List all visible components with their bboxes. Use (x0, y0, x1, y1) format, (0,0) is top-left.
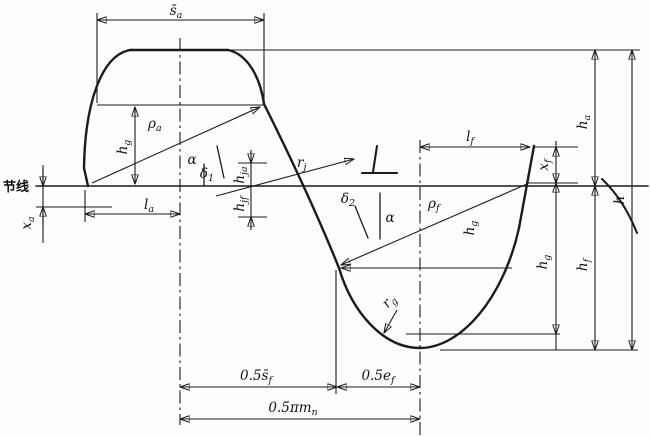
lower-tooth-root-fillet-curve (339, 228, 519, 348)
label-alpha-top: α (187, 152, 196, 168)
label-sa: s̄a (170, 3, 183, 21)
label-rg: rg (379, 291, 401, 312)
label-xa: xa (19, 216, 37, 230)
label-ha: ha (575, 114, 593, 129)
perpendicular-mark-stem (373, 146, 377, 172)
label-hf: hf (575, 257, 593, 271)
label-xf: xf (536, 158, 554, 171)
delta1-angle-tick (217, 146, 224, 178)
perpendicular-mark (362, 146, 397, 173)
label-hg-right: hg (535, 255, 553, 270)
label-delta1: δ1 (200, 166, 214, 184)
rho-a-leader-line (92, 107, 260, 183)
rg-leader-line (384, 310, 397, 333)
label-hg-bottom: hg (462, 221, 480, 236)
label-lf: lf (466, 129, 475, 147)
label-rho-f: ρf (427, 196, 441, 214)
delta2-angle-tick (355, 206, 368, 238)
label-hja: hja (232, 166, 250, 184)
label-la: la (144, 197, 154, 215)
label-delta2: δ2 (341, 191, 355, 209)
label-half-pimn: 0.5πmn (268, 400, 317, 418)
label-hjf: hjf (232, 195, 250, 212)
label-half-sf: 0.5s̄f (240, 368, 273, 386)
upper-tooth-tip-corner (228, 50, 264, 104)
label-h: h (612, 196, 628, 205)
label-alpha-bottom: α (385, 210, 394, 226)
upper-tooth-left-flank (84, 50, 130, 186)
label-half-ef: 0.5ef (362, 368, 396, 386)
gear-tooth-profile-diagram: 节线 s̄a hg ρa α δ1 rj hja hjf la xa δ2 α … (0, 0, 650, 436)
pitch-line-label: 节线 (3, 179, 29, 194)
label-rho-a: ρa (147, 116, 162, 134)
label-hg-top: hg (115, 140, 133, 155)
label-rj: rj (297, 155, 306, 173)
diagram-canvas: 节线 s̄a hg ρa α δ1 rj hja hjf la xa δ2 α … (0, 0, 650, 436)
